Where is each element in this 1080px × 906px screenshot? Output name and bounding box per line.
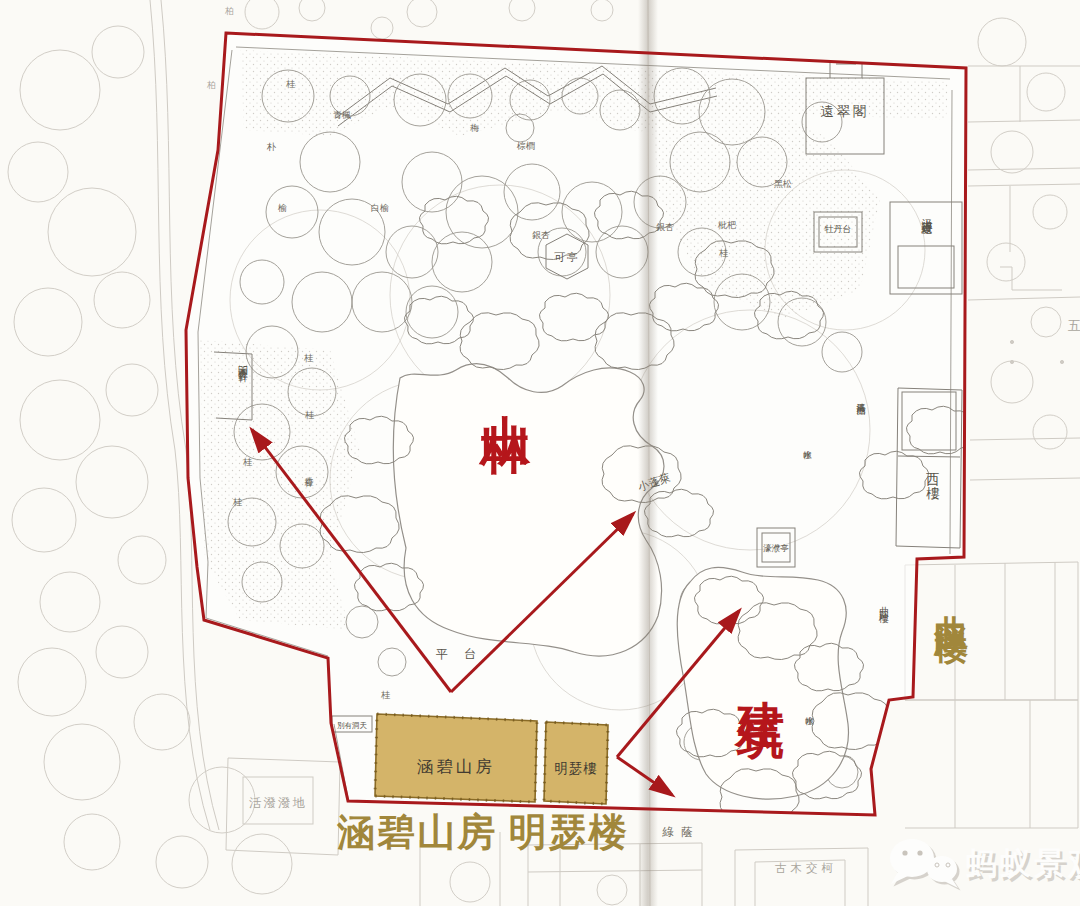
- tree-label-heisong: 黑松: [774, 179, 792, 189]
- tree-label-baiyu: 白榆: [371, 203, 389, 213]
- garden-plan-scan: 活潑潑地 古木交柯 綠蔭 五 柏 柏: [0, 0, 1080, 906]
- tree-label-mei: 梅: [470, 123, 479, 133]
- tree-label-gui: 桂: [233, 497, 243, 507]
- highlighted-buildings: 涵碧山房 明瑟樓: [375, 714, 608, 804]
- label-bieyoudongtian: 別有洞天: [337, 721, 368, 730]
- tree-label-gui: 桂: [286, 79, 296, 89]
- label-haopu: 濠濮亭: [763, 543, 789, 553]
- tree-label-qingfeng: 青楓: [333, 110, 351, 120]
- label-huopopodi: 活潑潑地: [249, 796, 307, 810]
- tree-label-gui: 桂: [304, 353, 314, 363]
- pond-west: [393, 364, 664, 656]
- tree-label-pu: 朴: [266, 142, 276, 152]
- tree-label-gui: 桂: [719, 248, 729, 258]
- tree-label-yinxing: 銀杏: [656, 222, 674, 232]
- tree-label-gui: 桂: [381, 690, 391, 700]
- label-mingse-lou: 明瑟樓: [554, 761, 598, 776]
- caption-hanbi-mingse: 涵碧山房 明瑟楼: [336, 811, 629, 853]
- label-hanbi-shanfang: 涵碧山房: [417, 757, 495, 776]
- tree-label-zonglv: 棕櫚: [516, 141, 535, 151]
- tree-label-yinxing: 銀杏: [532, 230, 550, 240]
- label-yuancuige: 遠翠閣: [820, 104, 870, 119]
- tree-label-bai: 柏: [224, 6, 234, 16]
- label-mudantai: 牡丹台: [825, 224, 852, 234]
- tree-label-gui: 桂: [305, 410, 315, 420]
- tree-label-gui: 桂: [243, 457, 253, 467]
- label-gumujiaoke: 古木交柯: [775, 862, 837, 874]
- label-keting: 可亭: [554, 251, 580, 263]
- label-lvyin: 綠蔭: [662, 826, 700, 838]
- tree-label-bai: 柏: [206, 80, 216, 90]
- watermark-brand: 蚂蚁景观: [966, 846, 1080, 881]
- tree-label-pipa: 枇杷: [717, 220, 736, 230]
- tree-label-yu: 榆: [277, 203, 287, 213]
- label-wu: 五: [1068, 318, 1080, 333]
